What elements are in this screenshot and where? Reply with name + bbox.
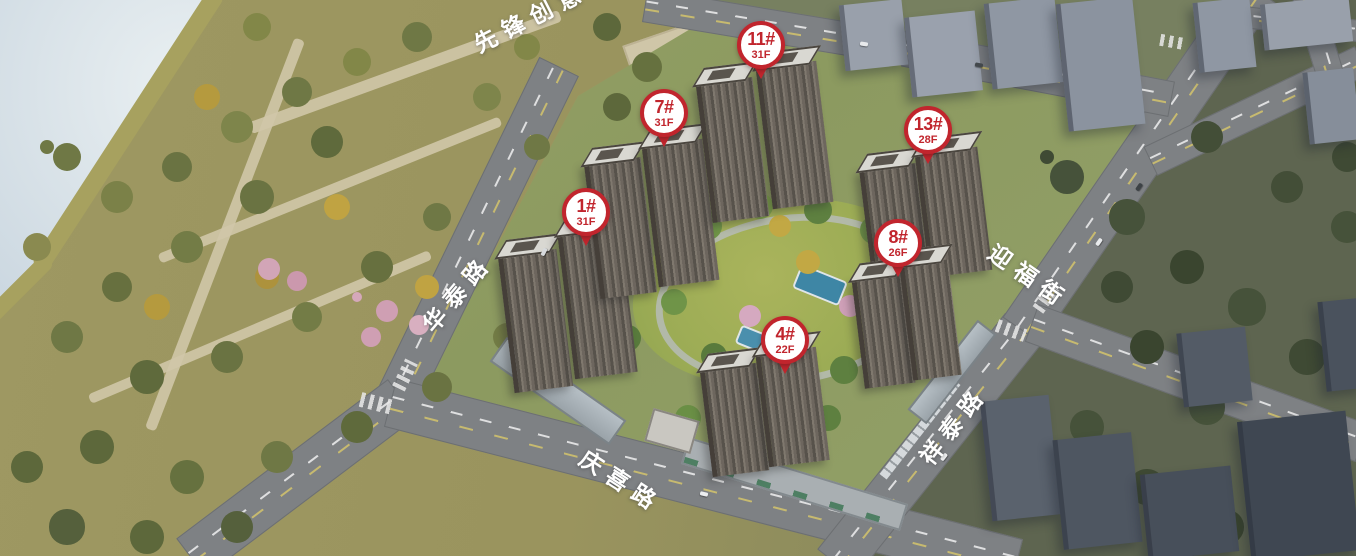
street-label-xianfengchuangyi: 先锋创意: [467, 0, 593, 59]
aerial-site-plan: 先锋创意 华泰路 迎福街 庆喜路 祥泰路 1# 31F 4# 22F 7# 31…: [0, 0, 1356, 556]
pin-building-number: 4#: [775, 325, 794, 343]
pin-circle: 11# 31F: [737, 21, 785, 69]
pin-circle: 13# 28F: [904, 106, 952, 154]
pin-building-number: 1#: [576, 197, 595, 215]
building-pin-4[interactable]: 4# 22F: [761, 316, 809, 382]
pin-floor-count: 28F: [919, 135, 938, 146]
pin-building-number: 7#: [654, 98, 673, 116]
building-pin-11[interactable]: 11# 31F: [737, 21, 785, 87]
park-path: [145, 37, 305, 431]
pin-circle: 8# 26F: [874, 219, 922, 267]
pin-floor-count: 31F: [655, 118, 674, 129]
blossom-trees: [352, 292, 362, 302]
pin-floor-count: 22F: [776, 345, 795, 356]
context-building: [984, 0, 1064, 89]
context-building: [839, 0, 909, 71]
pin-building-number: 13#: [914, 115, 943, 133]
context-building: [1237, 411, 1356, 556]
context-building: [904, 11, 983, 98]
building-pin-8[interactable]: 8# 26F: [874, 219, 922, 285]
pin-circle: 1# 31F: [562, 188, 610, 236]
building-pin-7[interactable]: 7# 31F: [640, 89, 688, 155]
context-building: [1140, 465, 1239, 556]
park-trees: [40, 140, 54, 154]
context-building: [1302, 68, 1356, 145]
pin-building-number: 8#: [888, 228, 907, 246]
pin-circle: 7# 31F: [640, 89, 688, 137]
building-pin-13[interactable]: 13# 28F: [904, 106, 952, 172]
context-building: [980, 395, 1061, 522]
context-building: [1192, 0, 1256, 73]
building-pin-1[interactable]: 1# 31F: [562, 188, 610, 254]
context-building: [1056, 0, 1146, 132]
pin-circle: 4# 22F: [761, 316, 809, 364]
context-building: [1052, 432, 1142, 550]
east-city-trees: [1040, 150, 1054, 164]
pin-floor-count: 31F: [577, 217, 596, 228]
context-building: [1176, 327, 1252, 408]
pin-building-number: 11#: [747, 30, 775, 48]
pin-floor-count: 31F: [752, 50, 771, 61]
pin-floor-count: 26F: [889, 248, 908, 259]
